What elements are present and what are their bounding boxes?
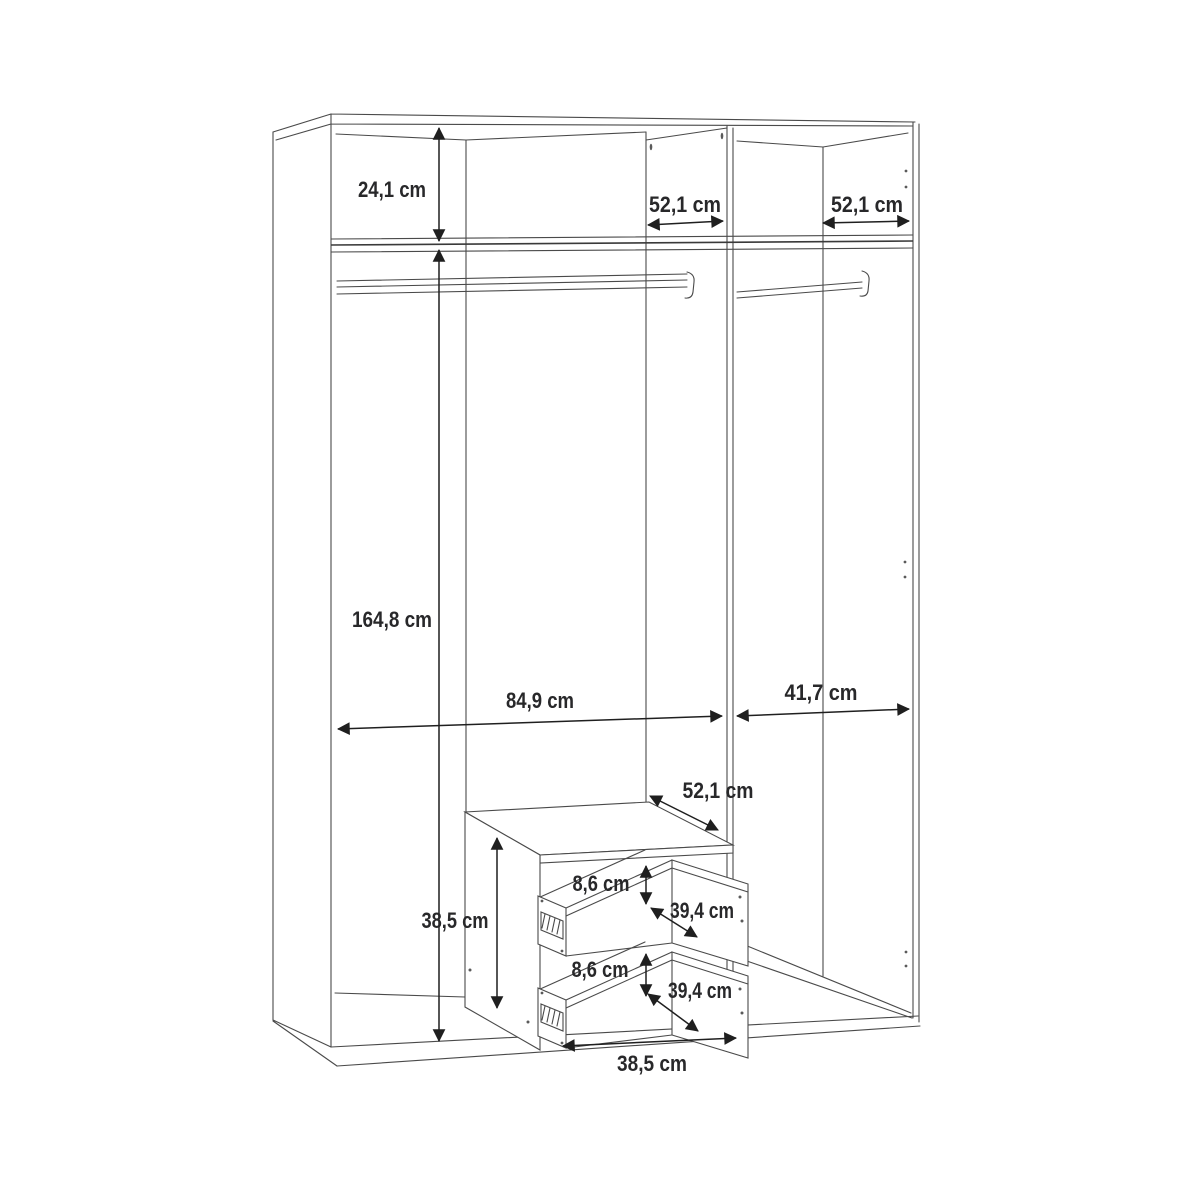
dim-label-drawer-unit-height: 38,5 cm bbox=[422, 908, 489, 933]
wardrobe-dimension-diagram: 24,1 cm 52,1 cm 52,1 cm 164,8 cm 84,9 cm… bbox=[0, 0, 1200, 1200]
dim-label-interior-height: 164,8 cm bbox=[352, 607, 432, 632]
dim-label-drawer1-depth: 39,4 cm bbox=[670, 898, 734, 923]
dim-label-right-section-width: 41,7 cm bbox=[785, 680, 858, 705]
dim-label-drawer-unit-width: 38,5 cm bbox=[617, 1051, 687, 1076]
dim-arrow-right-top-depth bbox=[823, 221, 909, 223]
floor-right-panel bbox=[740, 943, 912, 1018]
unit-panel-hole bbox=[469, 969, 472, 972]
dim-label-drawer2-depth: 39,4 cm bbox=[668, 978, 732, 1003]
dim-label-right-top-depth: 52,1 cm bbox=[831, 192, 903, 217]
cabinet-left-side bbox=[273, 114, 337, 1066]
dim-arrow-divider-depth bbox=[648, 221, 723, 225]
drawer-unit bbox=[465, 802, 748, 1058]
dim-label-divider-depth: 52,1 cm bbox=[649, 192, 721, 217]
cabinet-structure bbox=[273, 114, 920, 1066]
rail-bracket-left bbox=[685, 272, 694, 298]
cabinet-top-edges bbox=[273, 114, 915, 140]
rail-bracket-right bbox=[860, 271, 869, 296]
dim-label-drawer-unit-depth: 52,1 cm bbox=[683, 778, 754, 803]
unit-panel-hole bbox=[527, 1021, 530, 1024]
diagram-canvas: 24,1 cm 52,1 cm 52,1 cm 164,8 cm 84,9 cm… bbox=[0, 0, 1200, 1200]
dim-label-top-section-height: 24,1 cm bbox=[358, 177, 426, 202]
hanging-rail-left bbox=[337, 274, 687, 294]
floor-left-junction bbox=[335, 993, 465, 997]
dim-label-left-section-width: 84,9 cm bbox=[506, 688, 574, 713]
hanging-rail-right bbox=[737, 282, 862, 298]
dimension-labels: 24,1 cm 52,1 cm 52,1 cm 164,8 cm 84,9 cm… bbox=[352, 177, 903, 1076]
dim-label-drawer2-height: 8,6 cm bbox=[572, 957, 629, 982]
dim-arrow-left-section-width bbox=[338, 716, 722, 729]
cabinet-right-side bbox=[913, 122, 919, 1022]
top-shelf-front-edge bbox=[331, 241, 913, 245]
ceiling-junction-lines bbox=[336, 128, 908, 147]
dim-label-drawer1-height: 8,6 cm bbox=[573, 871, 630, 896]
